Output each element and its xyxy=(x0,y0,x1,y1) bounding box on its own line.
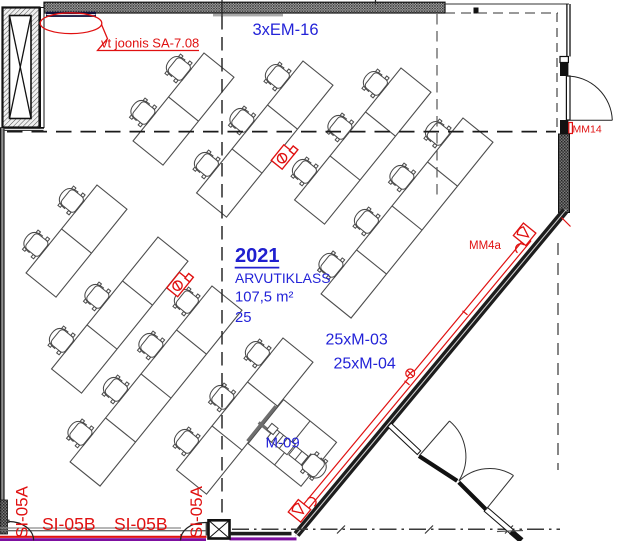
svg-text:MM14: MM14 xyxy=(573,124,602,136)
svg-text:vt joonis SA-7.08: vt joonis SA-7.08 xyxy=(101,36,199,51)
svg-text:SI-05B: SI-05B xyxy=(42,514,96,534)
svg-text:107,5 m²: 107,5 m² xyxy=(235,290,293,306)
svg-text:25xM-03: 25xM-03 xyxy=(326,332,388,349)
svg-text:SI-05B: SI-05B xyxy=(114,514,168,534)
svg-text:25xM-04: 25xM-04 xyxy=(334,356,396,373)
svg-text:MM4a: MM4a xyxy=(469,240,502,252)
svg-text:M-09: M-09 xyxy=(266,435,300,452)
svg-text:SI-05A: SI-05A xyxy=(13,485,32,538)
svg-text:2021: 2021 xyxy=(235,245,280,267)
svg-text:ARVUTIKLASS: ARVUTIKLASS xyxy=(235,270,330,286)
svg-text:25: 25 xyxy=(235,310,251,326)
svg-text:3xEM-16: 3xEM-16 xyxy=(253,21,319,39)
svg-text:SI-05A: SI-05A xyxy=(187,485,206,538)
